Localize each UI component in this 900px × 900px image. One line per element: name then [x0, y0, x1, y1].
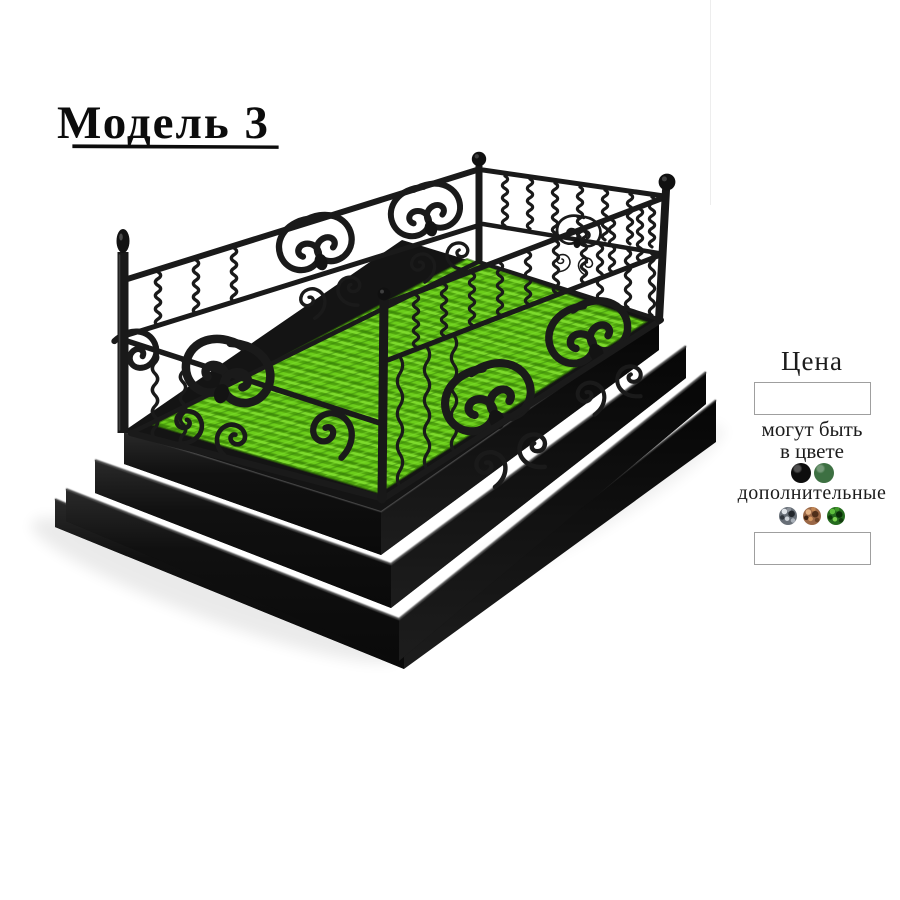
- color-swatch-copper-speckle[interactable]: [803, 507, 821, 525]
- color-note-line1: могут быть: [726, 418, 898, 440]
- color-swatch-black[interactable]: [791, 463, 811, 483]
- title-underline: [38, 144, 313, 150]
- color-swatch-silver-speckle[interactable]: [779, 507, 797, 525]
- finial-left-post: [117, 229, 130, 253]
- price-box[interactable]: [754, 382, 871, 415]
- color-swatch-green[interactable]: [814, 463, 834, 483]
- color-note-line2: в цвете: [726, 440, 898, 462]
- base-color-swatches: [726, 463, 898, 483]
- additional-colors-label: дополнительные: [726, 484, 898, 502]
- additional-color-swatches: [726, 507, 898, 525]
- photo-edge-line: [710, 0, 711, 205]
- color-swatch-green-speckle[interactable]: [827, 507, 845, 525]
- price-panel: Цена могут быть в цвете дополнительные: [726, 347, 898, 565]
- price-heading: Цена: [726, 347, 898, 375]
- additional-price-box[interactable]: [754, 532, 871, 565]
- page-title: Модель 3: [57, 96, 270, 150]
